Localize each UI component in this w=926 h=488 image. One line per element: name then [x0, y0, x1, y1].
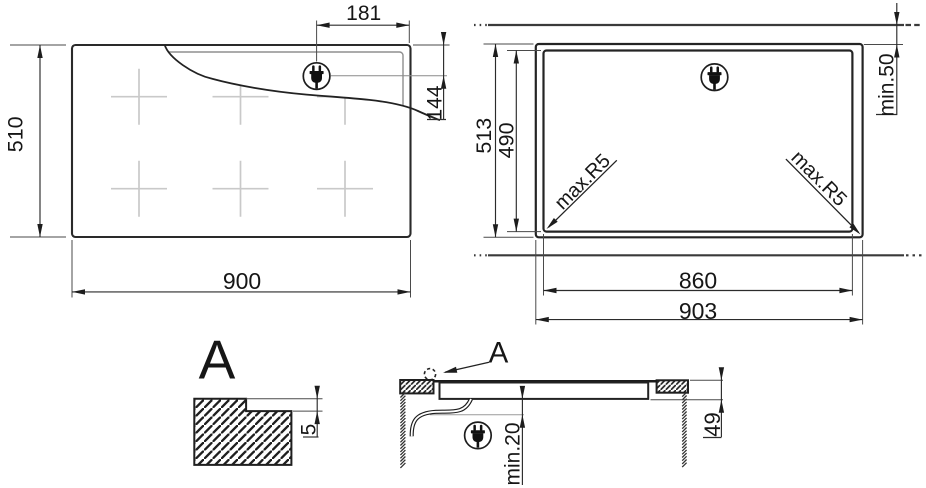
svg-text:A: A [199, 329, 236, 391]
svg-text:900: 900 [223, 268, 261, 294]
svg-text:513: 513 [472, 118, 496, 154]
svg-text:min.20: min.20 [501, 422, 524, 485]
svg-text:903: 903 [679, 298, 717, 324]
svg-text:A: A [489, 337, 509, 370]
svg-text:5: 5 [297, 424, 320, 436]
svg-text:49: 49 [700, 412, 725, 436]
svg-text:144: 144 [423, 85, 446, 120]
svg-text:510: 510 [4, 116, 28, 152]
svg-text:860: 860 [679, 268, 717, 294]
svg-text:181: 181 [346, 2, 381, 25]
svg-text:490: 490 [495, 122, 519, 158]
svg-text:min.50: min.50 [876, 53, 899, 116]
